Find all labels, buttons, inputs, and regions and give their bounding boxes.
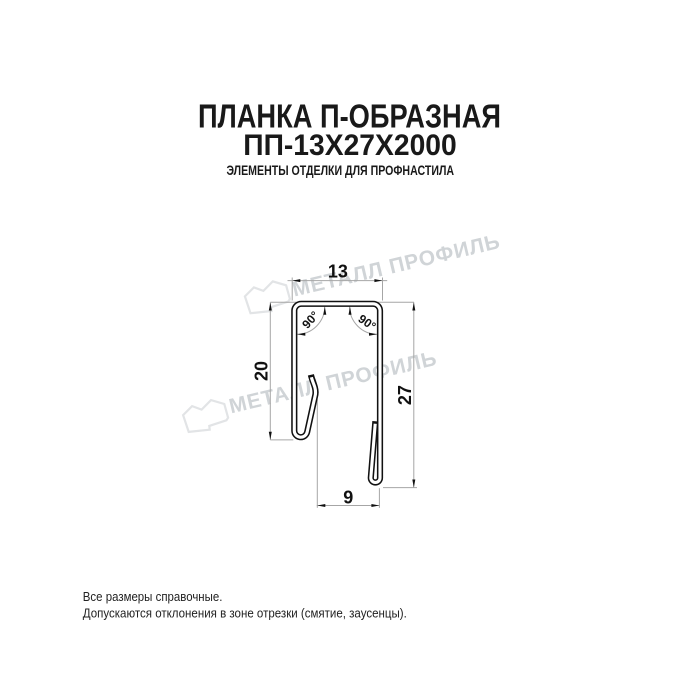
svg-text:9: 9 <box>343 487 353 507</box>
svg-text:Все размеры справочные.: Все размеры справочные. <box>83 590 223 604</box>
svg-text:МЕТАЛЛ ПРОФИЛЬ: МЕТАЛЛ ПРОФИЛЬ <box>290 230 503 301</box>
svg-text:27: 27 <box>395 385 415 405</box>
svg-text:МЕТАЛЛ ПРОФИЛЬ: МЕТАЛЛ ПРОФИЛЬ <box>227 347 440 418</box>
svg-text:90°: 90° <box>299 308 322 331</box>
svg-text:ЭЛЕМЕНТЫ ОТДЕЛКИ ДЛЯ ПРОФНАСТИ: ЭЛЕМЕНТЫ ОТДЕЛКИ ДЛЯ ПРОФНАСТИЛА <box>227 162 455 178</box>
svg-text:13: 13 <box>328 261 348 281</box>
svg-text:90°: 90° <box>356 312 379 334</box>
svg-text:ПП-13Х27Х2000: ПП-13Х27Х2000 <box>243 129 457 162</box>
svg-text:Допускаются отклонения в зоне: Допускаются отклонения в зоне отрезки (с… <box>83 607 407 621</box>
svg-text:20: 20 <box>251 361 271 381</box>
